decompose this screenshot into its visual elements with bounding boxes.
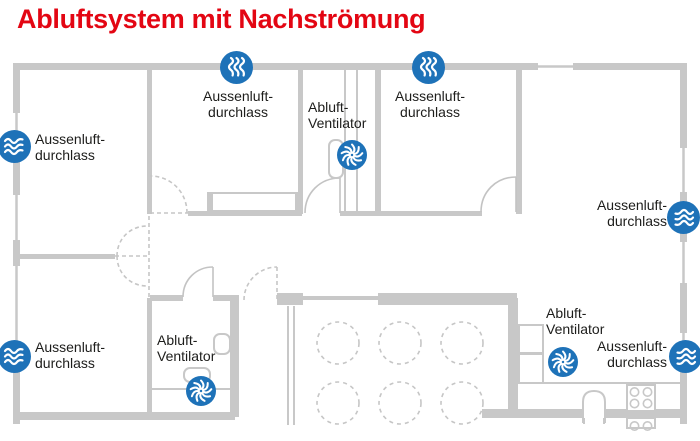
label-outdoor-air-top-1: Aussenluft- durchlass xyxy=(203,88,273,120)
label-outdoor-air-right-bottom: Aussenluft- durchlass xyxy=(597,338,667,370)
diagram-canvas: Abluftsystem mit Nachströmung xyxy=(0,0,700,441)
air-inlet-icon xyxy=(0,130,31,163)
label-exhaust-fan-bath: Abluft- Ventilator xyxy=(157,332,215,364)
closet xyxy=(208,193,300,211)
label-outdoor-air-left-bottom: Aussenluft- durchlass xyxy=(35,339,105,371)
label-exhaust-fan-kitchen: Abluft- Ventilator xyxy=(546,305,604,337)
air-inlet-icon xyxy=(412,51,445,84)
floor-plan xyxy=(0,0,700,441)
air-inlet-icon xyxy=(667,201,700,234)
label-outdoor-air-left-top: Aussenluft- durchlass xyxy=(35,131,105,163)
exhaust-fan-icon xyxy=(548,347,578,377)
doors xyxy=(115,176,516,300)
air-inlet-icon xyxy=(669,340,700,373)
exhaust-fan-icon xyxy=(186,376,216,406)
dining-tables xyxy=(317,322,483,424)
label-outdoor-air-right-top: Aussenluft- durchlass xyxy=(597,197,667,229)
air-inlet-icon xyxy=(220,51,253,84)
label-outdoor-air-top-2: Aussenluft- durchlass xyxy=(395,88,465,120)
air-inlet-icon xyxy=(0,340,31,373)
label-exhaust-fan-wc: Abluft- Ventilator xyxy=(308,99,366,131)
exhaust-fan-icon xyxy=(337,140,367,170)
